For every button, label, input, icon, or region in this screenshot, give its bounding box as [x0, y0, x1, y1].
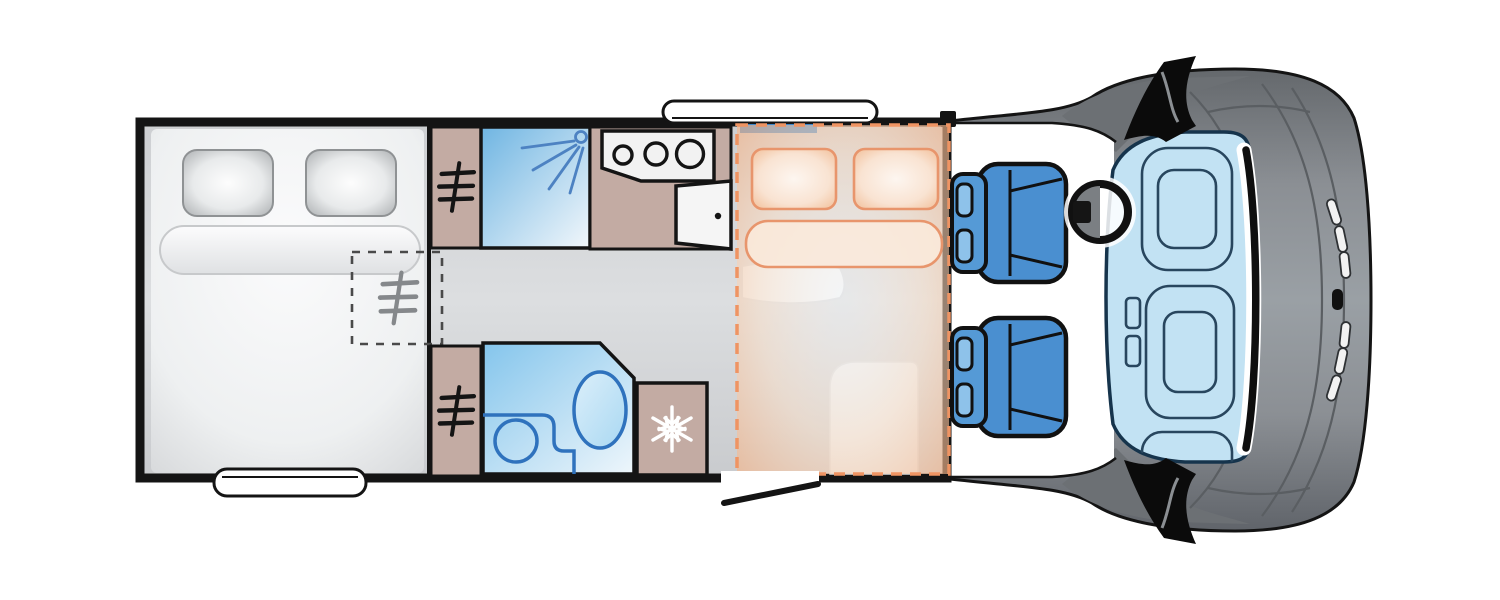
passenger-seat	[952, 318, 1066, 436]
driver-seat	[952, 164, 1066, 282]
windscreen	[1106, 132, 1250, 462]
fridge	[637, 383, 707, 475]
drop-down-bolster	[746, 221, 942, 267]
shower-cubicle	[481, 127, 590, 248]
window-rear-bottom	[214, 469, 366, 496]
steering-wheel-icon	[1064, 176, 1136, 248]
windscreen-dashboard	[1106, 132, 1256, 494]
window-top	[663, 101, 877, 123]
bathroom	[483, 343, 634, 474]
kitchen-unit	[590, 127, 731, 249]
drop-down-pillow	[854, 149, 938, 209]
pillow	[183, 150, 273, 216]
hob-icon	[602, 131, 714, 181]
door-handle	[715, 213, 721, 219]
entry-door-open	[721, 471, 819, 503]
pillow	[306, 150, 396, 216]
motorhome-floorplan	[0, 0, 1500, 600]
entry-door-top	[676, 181, 731, 249]
rear-bedroom	[151, 129, 442, 473]
drop-down-bed-overlay	[737, 125, 949, 474]
badge-dot	[1332, 289, 1343, 310]
toilet	[574, 372, 626, 448]
bolster	[160, 226, 420, 274]
motorhome-floorplan-canvas	[0, 0, 1500, 600]
drop-down-pillow	[752, 149, 836, 209]
